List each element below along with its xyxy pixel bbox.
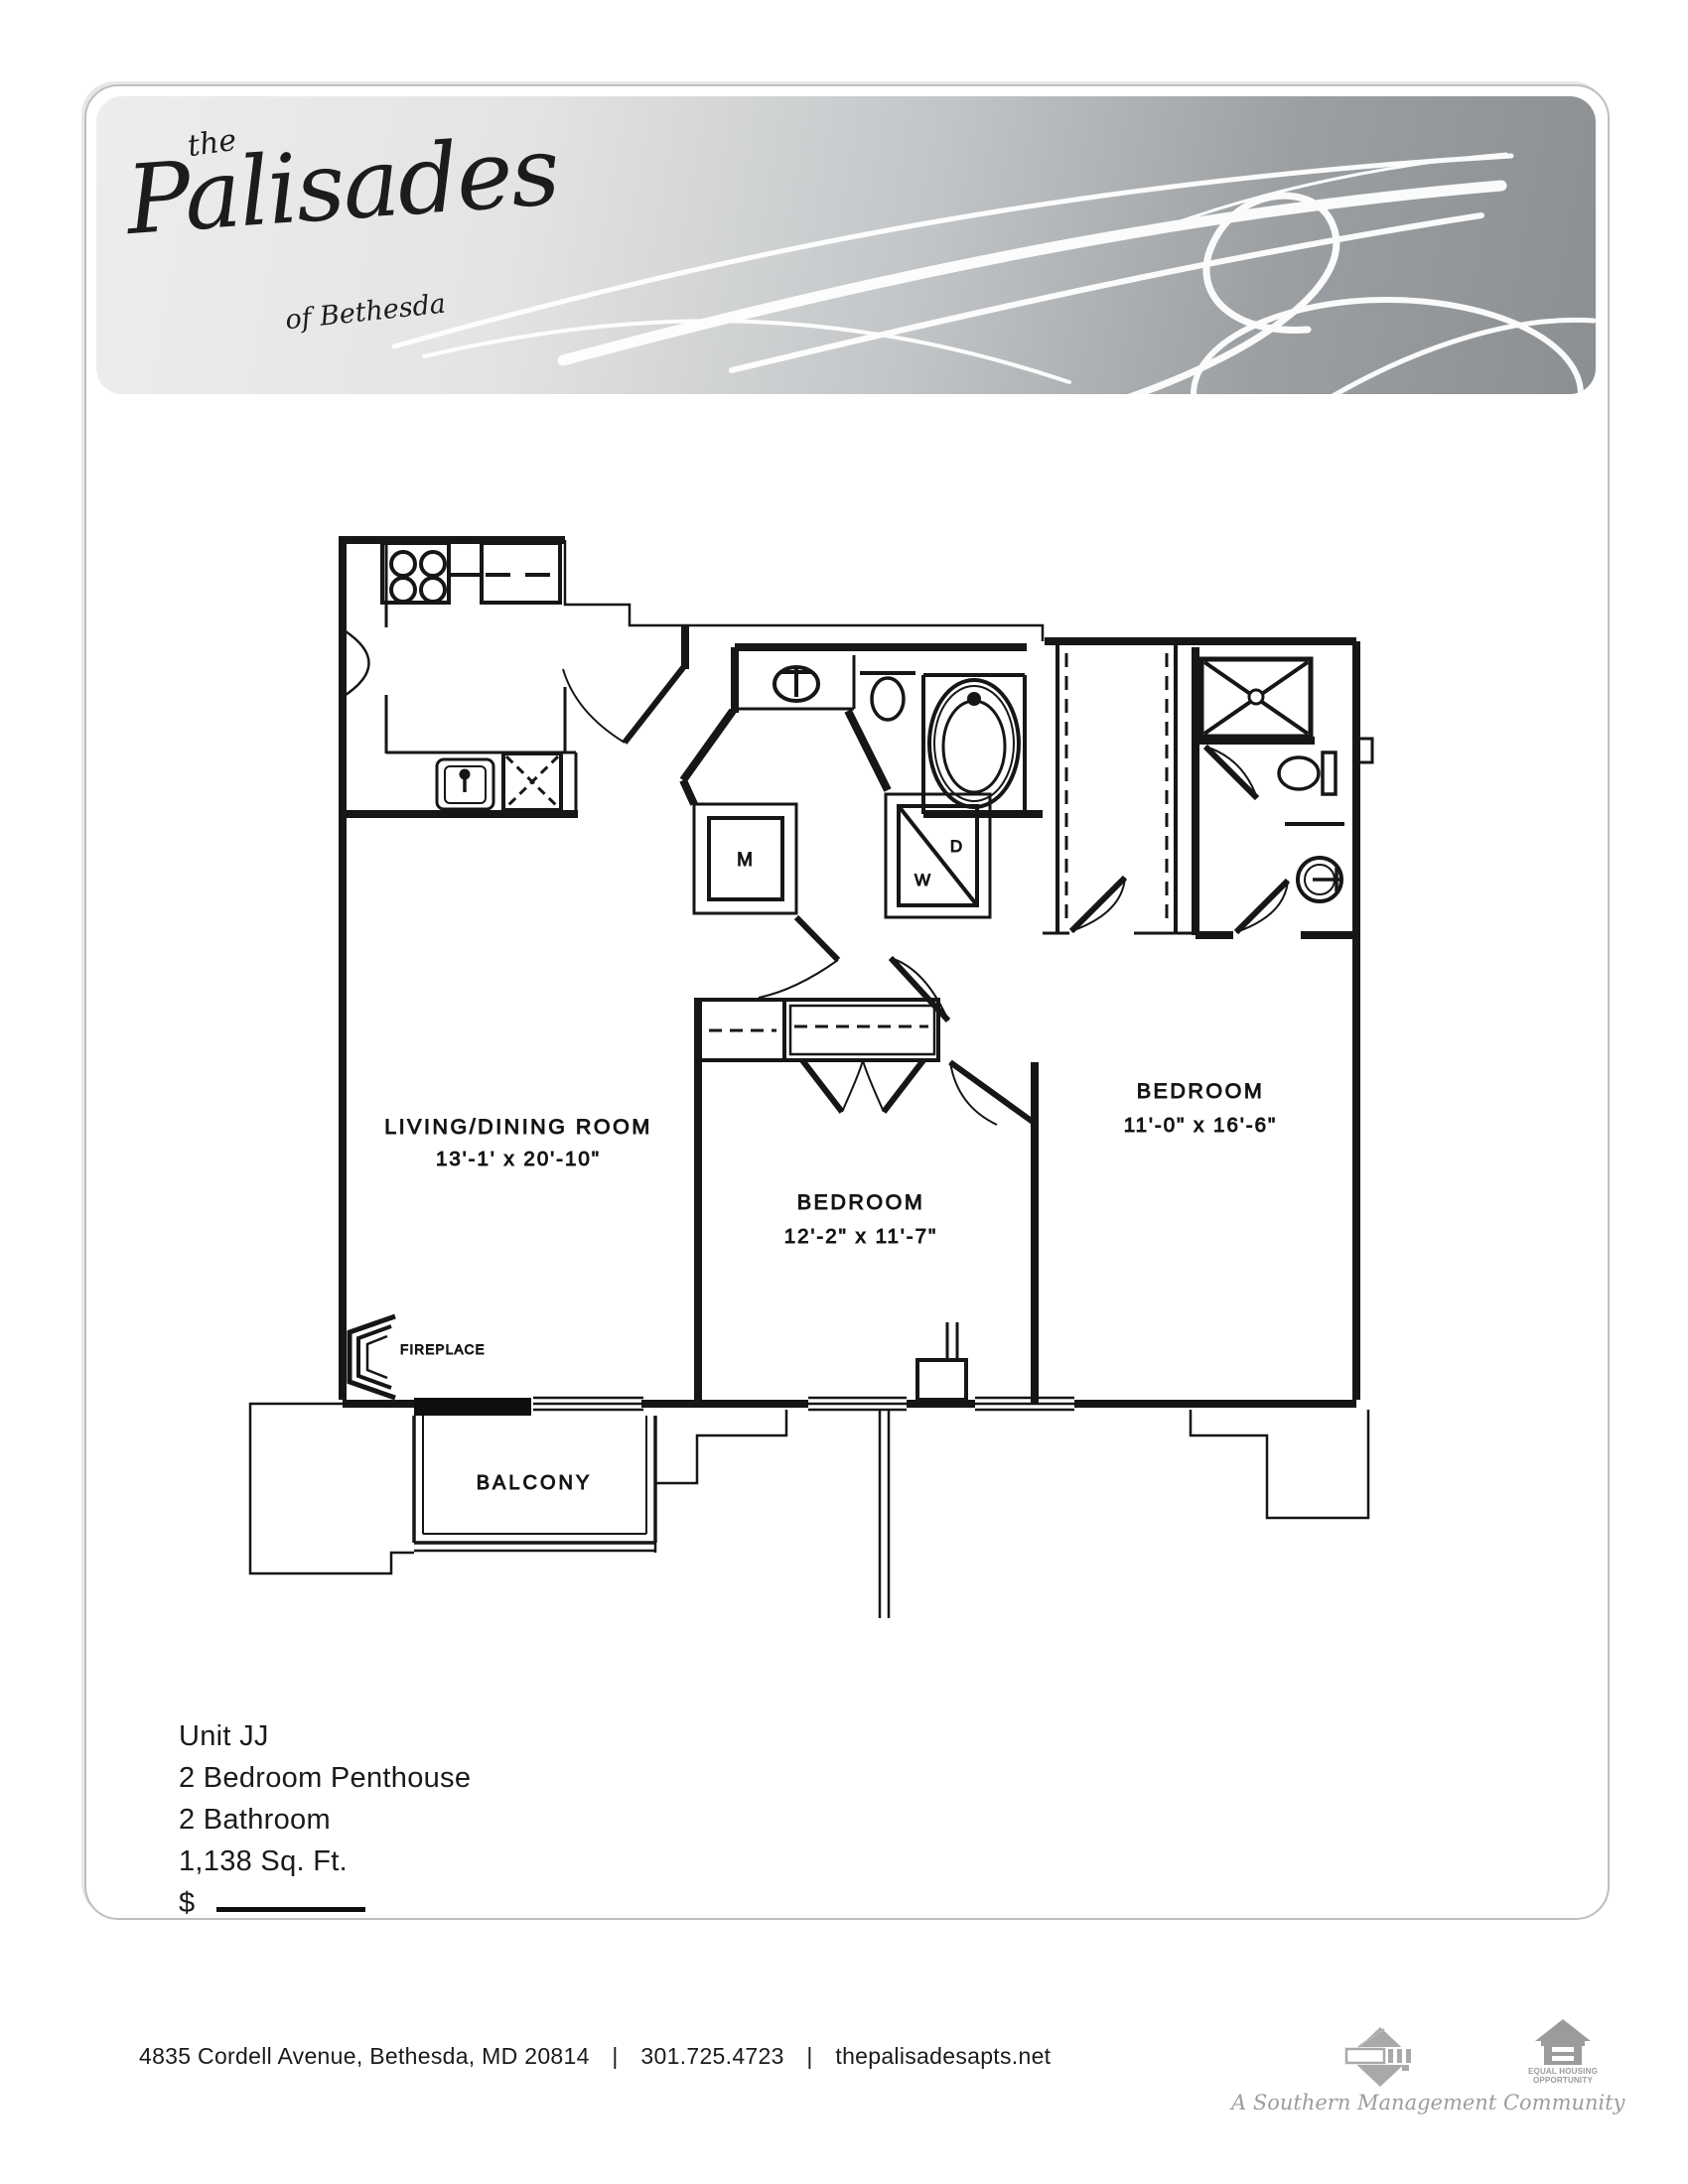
website-text: thepalisadesapts.net [835,2043,1051,2069]
phone-text: 301.725.4723 [640,2043,783,2069]
price-blank-line [216,1883,365,1912]
kitchen-sink-icon [437,759,493,809]
contact-line: 4835 Cordell Avenue, Bethesda, MD 20814 … [139,2043,1051,2070]
bedroom1-label: BEDROOM [797,1190,925,1214]
southern-management-block: A Southern Management Community [1231,2025,1529,2115]
southern-management-logo-icon [1340,2025,1420,2089]
living-room-label: LIVING/DINING ROOM [384,1115,652,1139]
dishwasher-icon [503,753,561,810]
address-text: 4835 Cordell Avenue, Bethesda, MD 20814 [139,2043,590,2069]
bath2-toilet-icon [1279,752,1336,794]
chase-lines [947,1322,957,1360]
page-footer: 4835 Cordell Avenue, Bethesda, MD 20814 … [0,2025,1688,2144]
kitchen-fridge-icon [451,543,560,603]
window-pillar [917,1360,966,1400]
unit-bathrooms: 2 Bathroom [179,1799,471,1841]
separator: | [806,2043,812,2069]
unit-name: Unit JJ [179,1715,471,1757]
community-tagline: A Southern Management Community [1231,2091,1529,2115]
price-prefix: $ [179,1887,195,1919]
bedroom2-dims: 11'-0" x 16'-6" [1124,1114,1278,1137]
dryer-label: D [950,837,962,856]
balcony-label: BALCONY [477,1472,593,1494]
washer-label: W [914,871,930,889]
entry-door-icon [563,665,685,743]
unit-area: 1,138 Sq. Ft. [179,1841,471,1882]
palisades-logo: the Palisades of Bethesda [126,102,583,390]
bedroom1-door-icon [950,1062,1033,1125]
eho-text-2: OPPORTUNITY [1527,2076,1599,2085]
fireplace-icon [350,1316,395,1398]
unit-price-row: $ [179,1882,471,1924]
bedroom2-label: BEDROOM [1137,1079,1265,1103]
bath2-door-icon [1205,747,1257,798]
unit-type: 2 Bedroom Penthouse [179,1757,471,1799]
mechanical-label: M [737,850,753,871]
fireplace-label: FIREPLACE [400,1342,486,1357]
bedroom1-closet [699,1000,938,1112]
balcony-door-band [414,1398,531,1416]
bedroom2-closet [1043,645,1194,933]
bath1-toilet-icon [860,673,915,720]
header-banner: the Palisades of Bethesda [96,96,1596,394]
eho-text-1: EQUAL HOUSING [1527,2067,1599,2076]
bath1-vanity-icon [739,655,854,709]
bath2-entry-door-icon [1236,881,1288,932]
bath2-shower-icon [1201,659,1311,737]
kitchen-stove-icon [382,543,449,603]
bath2-sink-icon [1285,824,1344,901]
brochure-card: the Palisades of Bethesda [84,84,1610,1920]
living-room-dims: 13'-1' x 20'-10" [436,1148,601,1170]
equal-housing-block: EQUAL HOUSING OPPORTUNITY [1527,2017,1599,2085]
bedroom1-dims: 12'-2" x 11'-7" [784,1225,938,1248]
floor-plan: LIVING/DINING ROOM 13'-1' x 20'-10" BEDR… [240,518,1382,1640]
logo-tagline: of Bethesda [284,289,447,337]
unit-info: Unit JJ 2 Bedroom Penthouse 2 Bathroom 1… [179,1715,471,1924]
equal-housing-icon [1535,2017,1591,2067]
separator: | [612,2043,618,2069]
